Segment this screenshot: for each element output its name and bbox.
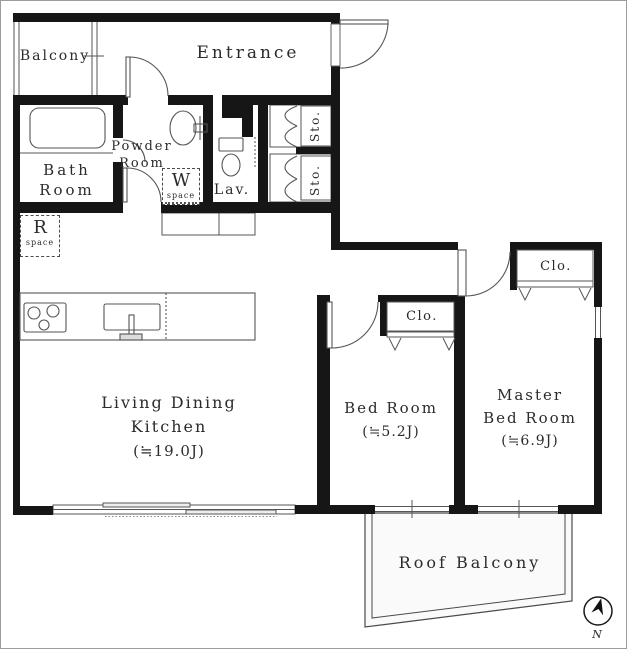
storage1-label-text: Sto. xyxy=(308,110,322,142)
entrance-door-opening xyxy=(331,24,340,66)
storage1-bifold-icon xyxy=(285,106,297,147)
entrance-label-text: Entrance xyxy=(197,43,300,63)
master-label-line1: Master xyxy=(483,384,577,407)
compass-north-text: N xyxy=(592,628,602,641)
bedroom-area: (≒5.2J) xyxy=(344,420,438,444)
balcony-label-text: Balcony xyxy=(20,48,90,64)
master-bedroom-label: Master Bed Room (≒6.9J) xyxy=(483,384,577,453)
master-door-icon xyxy=(458,250,510,296)
refrigerator-space-box: R space xyxy=(20,215,60,257)
master-area: (≒6.9J) xyxy=(483,430,577,453)
bath-label-line2: Room xyxy=(39,180,95,200)
washer-space-letter: W xyxy=(163,171,199,191)
entrance-label: Entrance xyxy=(197,43,300,63)
roof-balcony-label: Roof Balcony xyxy=(399,553,542,572)
compass-north-label: N xyxy=(592,628,602,641)
bathtub-icon xyxy=(30,108,105,148)
refrigerator-space-caption: space xyxy=(21,238,59,247)
ldk-area: (≒19.0J) xyxy=(101,439,236,463)
refrigerator-space-letter: R xyxy=(21,218,59,238)
bedroom-door-icon xyxy=(327,302,378,348)
washer-space-caption: space xyxy=(163,191,199,200)
kitchen-counter-icon xyxy=(20,293,255,340)
powder-label-line1: Powder xyxy=(111,138,172,155)
lav-label-text: Lav. xyxy=(214,182,250,198)
bath-room-label: Bath Room xyxy=(39,160,95,200)
powder-door-icon xyxy=(126,57,168,97)
floor-plan: Balcony Entrance Bath Room Powder Room L… xyxy=(0,0,627,649)
sink-icon xyxy=(170,111,207,145)
lav-label: Lav. xyxy=(214,182,250,198)
ldk-door-icon xyxy=(123,168,161,202)
entrance-door-icon xyxy=(340,20,388,68)
storage1-label: Sto. xyxy=(308,110,322,142)
bedroom-closet-label: Clo. xyxy=(406,309,438,324)
master-closet-label-text: Clo. xyxy=(540,259,572,274)
ldk-window xyxy=(53,503,295,517)
storage2-label: Sto. xyxy=(308,164,322,196)
roof-balcony-label-text: Roof Balcony xyxy=(399,553,542,572)
compass-icon xyxy=(584,597,612,625)
ldk-label-line1: Living Dining xyxy=(101,391,236,415)
ldk-label: Living Dining Kitchen (≒19.0J) xyxy=(101,391,236,463)
master-closet-icon xyxy=(517,250,593,300)
stove-icon xyxy=(24,303,66,332)
master-window xyxy=(594,307,602,338)
storage2-bifold-icon xyxy=(285,156,297,202)
washer-space-box: W space xyxy=(162,168,200,205)
washer-space-hatch xyxy=(165,202,197,204)
powder-room-label: Powder Room xyxy=(111,138,172,172)
bedroom-closet-label-text: Clo. xyxy=(406,309,438,324)
master-label-line2: Bed Room xyxy=(483,407,577,430)
floor-plan-drawing xyxy=(0,0,627,649)
kitchen-sink-icon xyxy=(104,304,160,340)
balcony-label: Balcony xyxy=(20,48,90,64)
toilet-icon xyxy=(219,138,243,176)
bedroom-label-line1: Bed Room xyxy=(344,396,438,420)
ldk-label-line2: Kitchen xyxy=(101,415,236,439)
bath-label-line1: Bath xyxy=(39,160,95,180)
master-closet-label: Clo. xyxy=(540,259,572,274)
storage2-label-text: Sto. xyxy=(308,164,322,196)
bedroom-label: Bed Room (≒5.2J) xyxy=(344,396,438,444)
